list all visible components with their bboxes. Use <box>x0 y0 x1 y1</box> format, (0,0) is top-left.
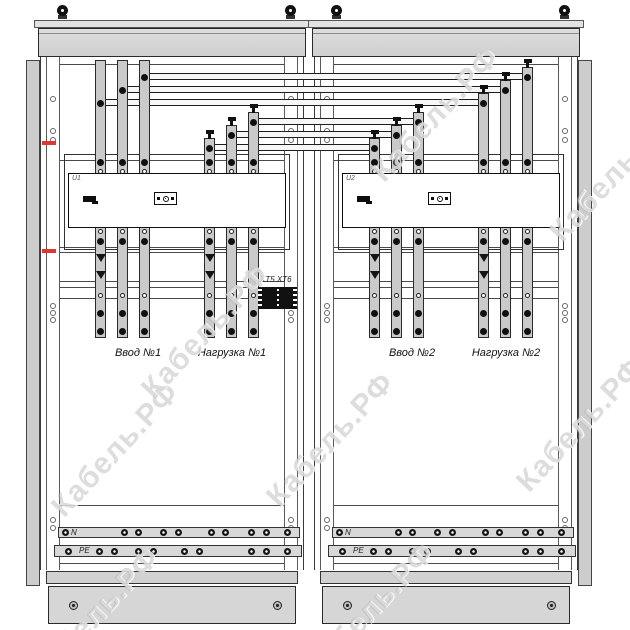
red-section-mark <box>42 141 56 145</box>
changeover-switch-u1: U1 <box>68 173 286 228</box>
right-side-panel <box>578 60 592 586</box>
busbar-bolt <box>502 238 509 245</box>
vertical-busbar <box>391 125 402 338</box>
bus-bolt <box>409 548 416 555</box>
frame-rail-line <box>60 64 284 65</box>
bus-bolt <box>135 529 142 536</box>
busbar-bolt <box>480 159 487 166</box>
busbar-screw <box>525 293 530 298</box>
busbar-bolt <box>250 159 257 166</box>
bus-bolt <box>248 548 255 555</box>
busbar-bolt <box>206 310 213 317</box>
bus-bolt <box>409 529 416 536</box>
busbar-bolt <box>97 100 104 107</box>
lifting-eyebolt-icon <box>284 5 296 19</box>
busbar-bolt <box>415 310 422 317</box>
bus-bolt <box>135 548 142 555</box>
busbar-bolt <box>502 310 509 317</box>
busbar-screw <box>229 293 234 298</box>
bus-bolt <box>336 529 343 536</box>
busbar-bolt <box>371 145 378 152</box>
busbar-bolt <box>119 310 126 317</box>
busbar-bolt <box>119 238 126 245</box>
busbar-screw <box>251 229 256 234</box>
plinth <box>322 586 570 624</box>
bus-bolt <box>370 548 377 555</box>
frame-rail-line <box>334 505 558 506</box>
busbar-bolt <box>502 87 509 94</box>
busbar-bolt <box>119 328 126 335</box>
mounting-hole <box>324 317 330 323</box>
busbar-screw <box>251 293 256 298</box>
bus-bolt <box>385 548 392 555</box>
busbar-screw <box>416 293 421 298</box>
bus-bolt <box>121 529 128 536</box>
manufacturer-logo-icon <box>357 196 370 202</box>
busbar-bolt <box>480 100 487 107</box>
mounting-hole <box>50 96 56 102</box>
busbar-screw <box>394 293 399 298</box>
horizontal-busbar <box>117 86 511 93</box>
busbar-bolt <box>415 119 422 126</box>
plinth <box>48 586 296 624</box>
plinth-screw-icon <box>547 601 556 610</box>
n-busbar: N <box>58 527 300 538</box>
busbar-bolt <box>141 328 148 335</box>
busbar-bolt <box>524 328 531 335</box>
busbar-screw <box>207 229 212 234</box>
bus-bolt <box>284 548 291 555</box>
busbar-screw <box>481 293 486 298</box>
bus-bolt <box>482 529 489 536</box>
bus-bolt <box>65 548 72 555</box>
top-plate <box>308 20 584 28</box>
mounting-hole <box>324 525 330 531</box>
manufacturer-logo-icon <box>83 196 96 202</box>
busbar-bolt <box>480 310 487 317</box>
busbar-bolt <box>393 328 400 335</box>
busbar-bolt <box>393 238 400 245</box>
bus-bolt <box>434 529 441 536</box>
left-side-panel <box>26 60 40 586</box>
busbar-bolt <box>206 145 213 152</box>
busbar-bolt <box>250 310 257 317</box>
busbar-screw <box>372 229 377 234</box>
cabinet-bay-1: U1 XT5 XT6 N PE Ввод №1 Нагрузка №1 <box>34 0 310 630</box>
frame-rail-line <box>60 505 284 506</box>
busbar-bolt <box>97 238 104 245</box>
busbar-bolt <box>371 310 378 317</box>
bus-bolt <box>558 529 565 536</box>
load-label: Нагрузка №2 <box>472 347 540 359</box>
mounting-hole <box>50 303 56 309</box>
busbar-bolt <box>97 328 104 335</box>
bus-bolt <box>263 548 270 555</box>
bus-bolt <box>395 529 402 536</box>
mounting-hole <box>50 517 56 523</box>
bus-bolt <box>175 529 182 536</box>
mounting-hole <box>288 517 294 523</box>
n-bus-label: N <box>71 528 77 537</box>
pe-busbar: PE <box>328 545 576 557</box>
drawing-stage: U1 XT5 XT6 N PE Ввод №1 Нагрузка №1 <box>0 0 630 630</box>
lifting-eyebolt-icon <box>56 5 68 19</box>
pe-bus-label: PE <box>353 546 364 555</box>
bus-bolt <box>222 529 229 536</box>
busbar-screw <box>207 293 212 298</box>
bus-bolt <box>150 548 157 555</box>
busbar-screw <box>142 293 147 298</box>
busbar-screw <box>416 229 421 234</box>
red-section-mark <box>42 249 56 253</box>
busbar-screw <box>503 229 508 234</box>
frame-rail-line <box>334 64 558 65</box>
busbar-bolt <box>119 87 126 94</box>
busbar-screw <box>120 293 125 298</box>
load-label: Нагрузка №1 <box>198 347 266 359</box>
bus-bolt <box>62 529 69 536</box>
bottom-rail <box>46 571 298 584</box>
mounting-hole <box>562 128 568 134</box>
busbar-bolt <box>415 238 422 245</box>
bus-bolt <box>449 529 456 536</box>
mounting-hole <box>562 137 568 143</box>
busbar-bolt <box>250 328 257 335</box>
busbar-bolt <box>206 238 213 245</box>
busbar-bolt <box>119 159 126 166</box>
bus-bolt <box>339 548 346 555</box>
busbar-bolt <box>524 238 531 245</box>
mounting-hole <box>562 317 568 323</box>
busbar-clamp <box>479 271 489 279</box>
bus-bolt <box>455 548 462 555</box>
bus-bolt <box>160 529 167 536</box>
busbar-bolt <box>524 74 531 81</box>
switch-handle-plate <box>154 192 177 205</box>
lifting-eyebolt-icon <box>330 5 342 19</box>
bus-bolt <box>181 548 188 555</box>
horizontal-busbar <box>95 99 489 106</box>
horizontal-busbar <box>139 73 533 80</box>
top-plate <box>34 20 310 28</box>
busbar-screw <box>503 293 508 298</box>
input-label: Ввод №1 <box>115 347 161 359</box>
bus-bolt <box>470 548 477 555</box>
cabinet-wall <box>40 57 41 570</box>
busbar-clamp <box>370 271 380 279</box>
pe-busbar: PE <box>54 545 302 557</box>
vertical-busbar <box>226 125 237 338</box>
vertical-busbar <box>204 138 215 338</box>
mounting-hole <box>562 517 568 523</box>
bus-bolt <box>522 548 529 555</box>
busbar-screw <box>372 293 377 298</box>
bus-bolt <box>263 529 270 536</box>
busbar-screw <box>229 229 234 234</box>
frame-rail-line <box>60 563 284 564</box>
busbar-screw <box>98 229 103 234</box>
busbar-bolt <box>250 238 257 245</box>
mounting-hole <box>50 525 56 531</box>
terminal-block-xt5-xt6 <box>258 287 297 309</box>
busbar-bolt <box>524 310 531 317</box>
busbar-bolt <box>480 238 487 245</box>
busbar-bolt <box>415 328 422 335</box>
bus-bolt <box>424 548 431 555</box>
busbar-screw <box>481 229 486 234</box>
busbar-bolt <box>206 159 213 166</box>
busbar-clamp <box>96 271 106 279</box>
busbar-screw <box>142 229 147 234</box>
bus-bolt <box>537 548 544 555</box>
busbar-bolt <box>371 159 378 166</box>
mounting-hole <box>562 310 568 316</box>
busbar-bolt <box>141 310 148 317</box>
switch-handle-plate <box>428 192 451 205</box>
busbar-bolt <box>141 159 148 166</box>
mounting-hole <box>324 303 330 309</box>
busbar-bolt <box>228 310 235 317</box>
busbar-bolt <box>206 328 213 335</box>
mounting-hole <box>50 128 56 134</box>
bus-bolt <box>522 529 529 536</box>
changeover-switch-u2: U2 <box>342 173 560 228</box>
device-label: U2 <box>346 175 355 182</box>
top-cap <box>38 28 306 57</box>
bus-bolt <box>248 529 255 536</box>
busbar-bolt <box>502 328 509 335</box>
busbar-clamp <box>205 271 215 279</box>
pe-bus-label: PE <box>79 546 90 555</box>
bus-bolt <box>284 529 291 536</box>
mounting-hole <box>50 310 56 316</box>
busbar-clamp <box>96 254 106 262</box>
busbar-screw <box>98 293 103 298</box>
lifting-eyebolt-icon <box>558 5 570 19</box>
mounting-hole <box>324 310 330 316</box>
bus-bolt <box>111 548 118 555</box>
n-bus-label: N <box>345 528 351 537</box>
busbar-screw <box>525 229 530 234</box>
busbar-bolt <box>393 159 400 166</box>
busbar-bolt <box>393 132 400 139</box>
bus-bolt <box>208 529 215 536</box>
busbar-clamp <box>370 254 380 262</box>
bus-bolt <box>196 548 203 555</box>
input-label: Ввод №2 <box>389 347 435 359</box>
bus-bolt <box>537 529 544 536</box>
bottom-rail <box>320 571 572 584</box>
busbar-bolt <box>502 159 509 166</box>
busbar-bolt <box>141 74 148 81</box>
bus-bolt <box>558 548 565 555</box>
busbar-bolt <box>228 159 235 166</box>
busbar-bolt <box>97 159 104 166</box>
vertical-busbar <box>369 138 380 338</box>
mounting-hole <box>288 317 294 323</box>
busbar-bolt <box>250 119 257 126</box>
mounting-hole <box>562 96 568 102</box>
busbar-bolt <box>228 328 235 335</box>
plinth-screw-icon <box>69 601 78 610</box>
device-label: U1 <box>72 175 81 182</box>
busbar-bolt <box>524 159 531 166</box>
top-cap <box>312 28 580 57</box>
busbar-bolt <box>228 132 235 139</box>
frame-rail-line <box>334 563 558 564</box>
n-busbar: N <box>332 527 574 538</box>
busbar-bolt <box>415 159 422 166</box>
busbar-bolt <box>371 238 378 245</box>
busbar-bolt <box>228 238 235 245</box>
cabinet-wall <box>577 57 578 570</box>
terminal-block-label: XT5 XT6 <box>260 275 292 284</box>
mounting-hole <box>562 303 568 309</box>
busbar-bolt <box>480 328 487 335</box>
plinth-screw-icon <box>273 601 282 610</box>
busbar-screw <box>120 229 125 234</box>
busbar-clamp <box>479 254 489 262</box>
bus-bolt <box>96 548 103 555</box>
bus-bolt <box>496 529 503 536</box>
busbar-screw <box>394 229 399 234</box>
busbar-bolt <box>393 310 400 317</box>
cabinet-bay-2: U2 N PE Ввод №2 Нагрузка №2 <box>308 0 584 630</box>
mounting-hole <box>288 310 294 316</box>
busbar-bolt <box>371 328 378 335</box>
busbar-clamp <box>205 254 215 262</box>
mounting-hole <box>324 517 330 523</box>
busbar-bolt <box>97 310 104 317</box>
plinth-screw-icon <box>343 601 352 610</box>
busbar-bolt <box>141 238 148 245</box>
mounting-hole <box>50 317 56 323</box>
